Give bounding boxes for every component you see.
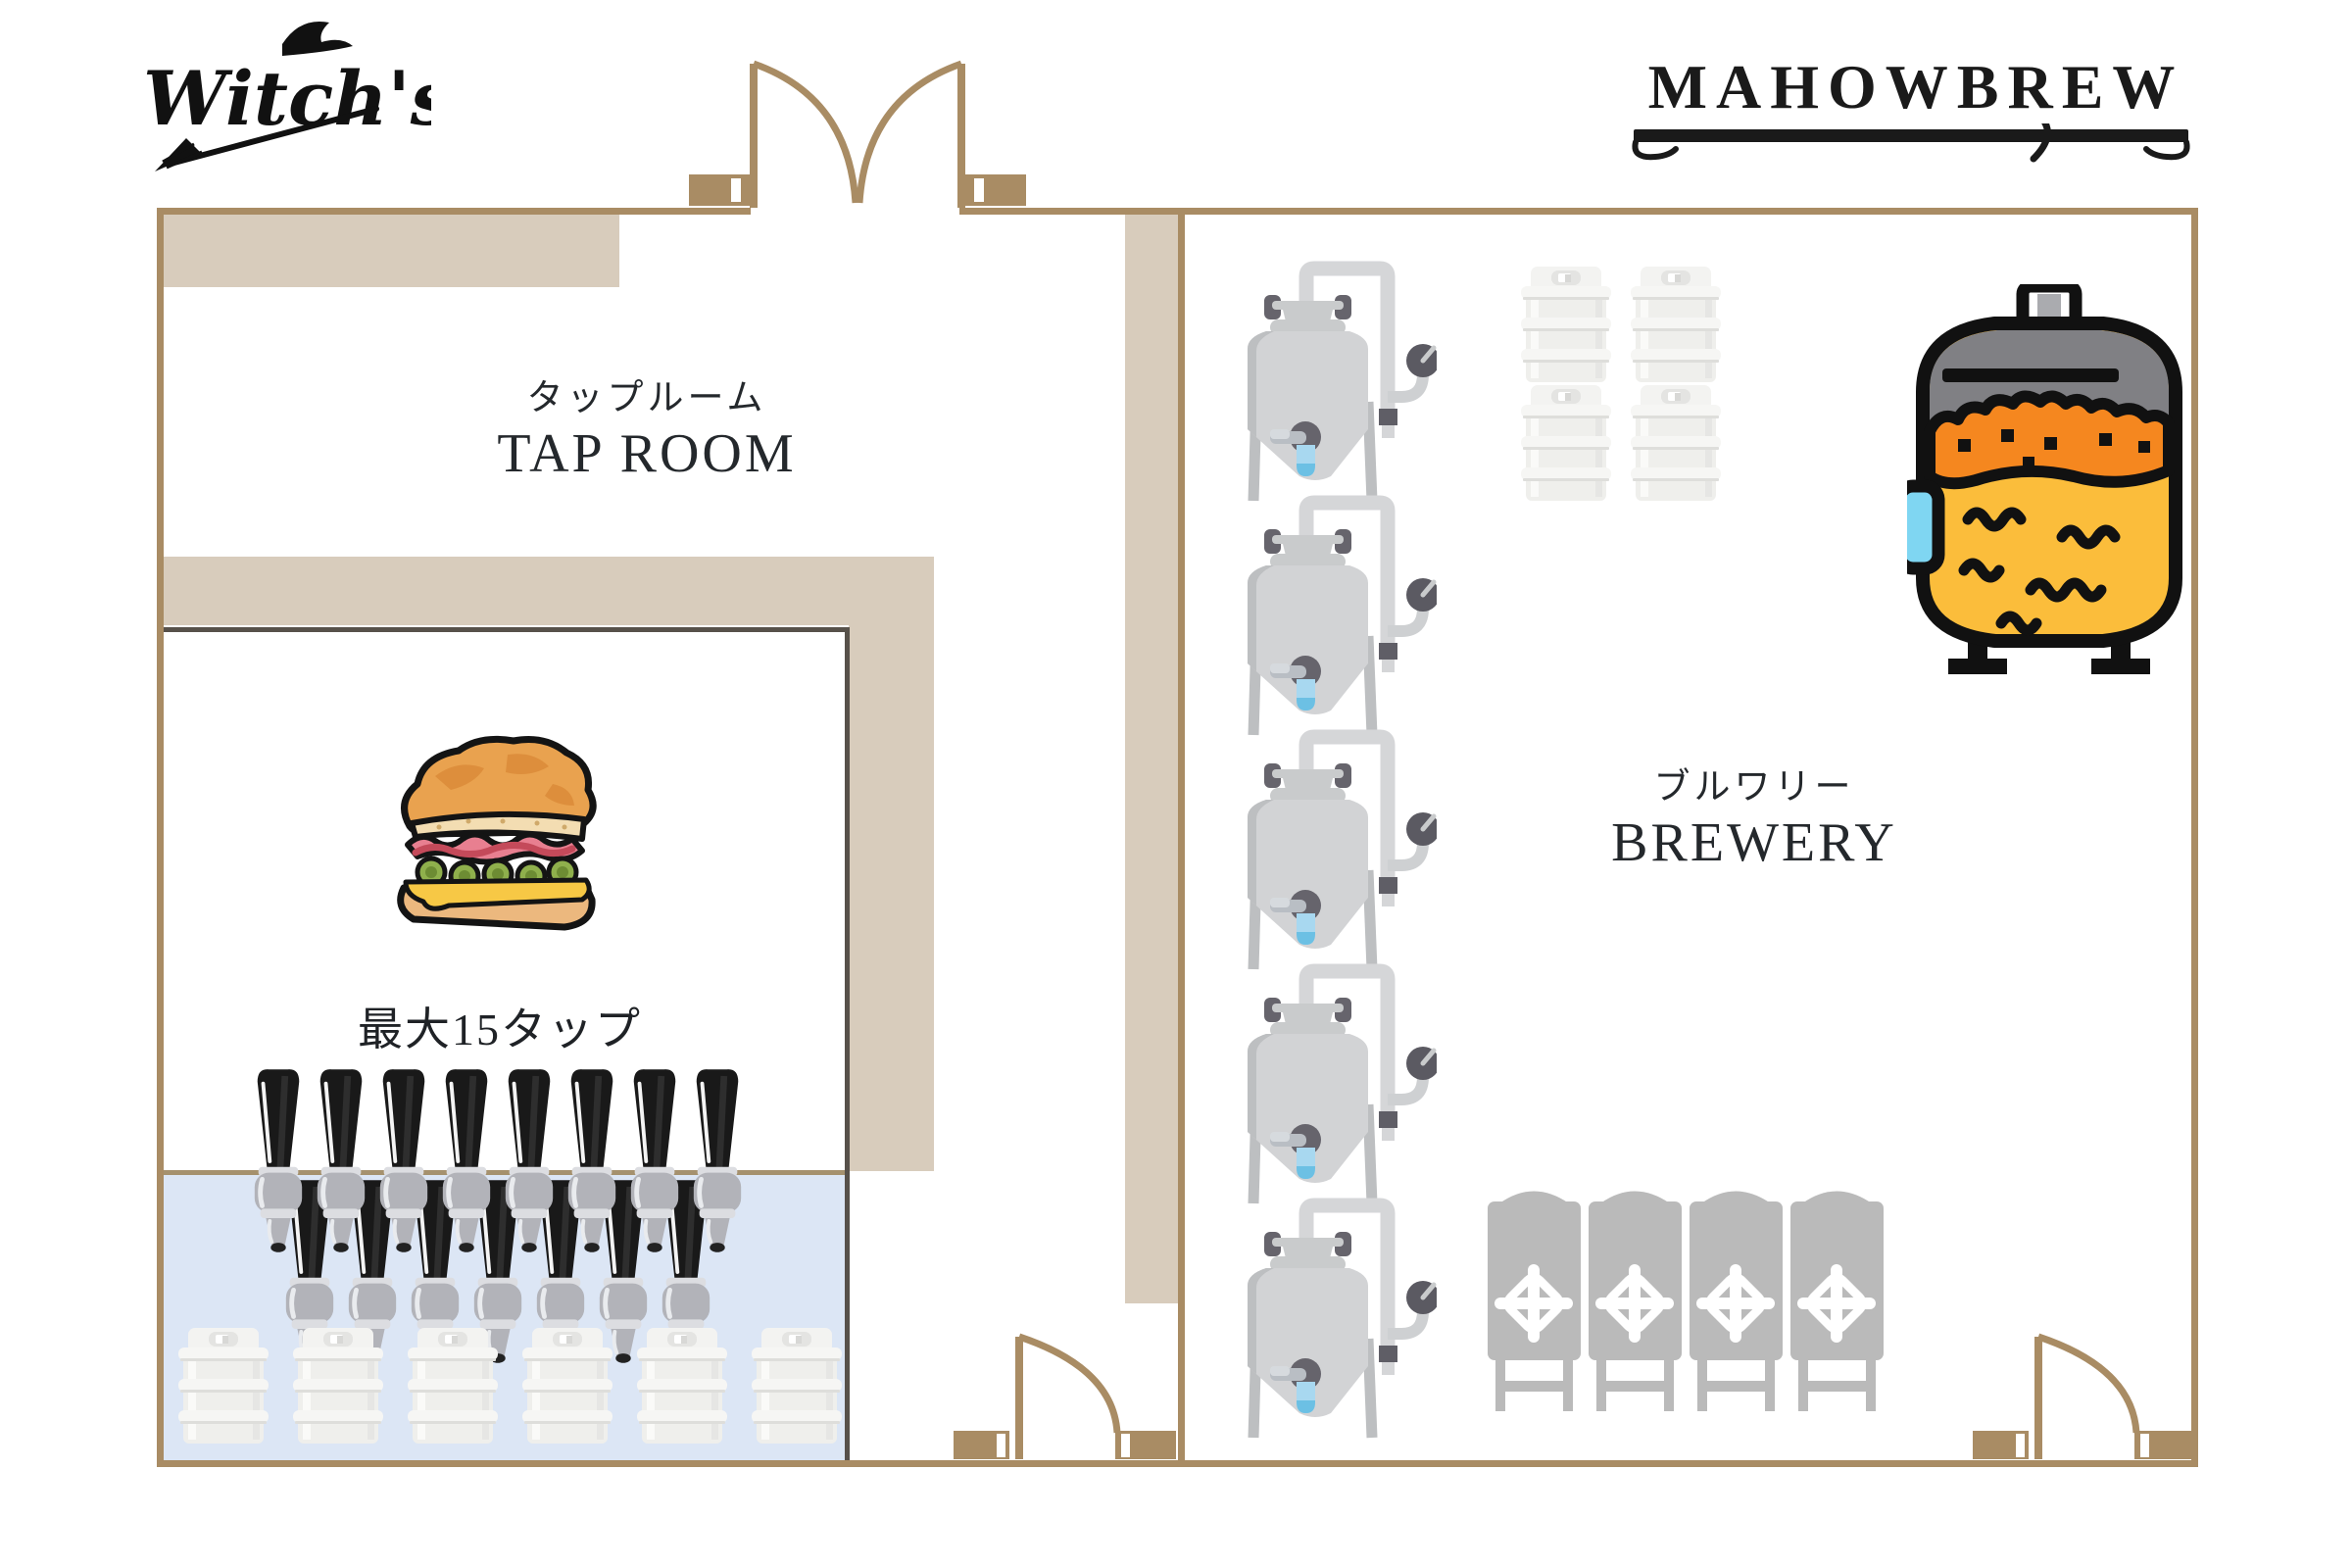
brewery-label-jp: ブルワリー <box>1509 757 1999 809</box>
tap-capacity-note: 最大15タップ <box>255 994 745 1058</box>
beer-tap-icon <box>689 1063 746 1259</box>
brite-tank-icon <box>1790 1184 1884 1414</box>
tap-row-back <box>250 1063 746 1259</box>
keg-icon <box>1631 385 1721 501</box>
keg-icon <box>637 1328 727 1444</box>
fermenter-tank-icon <box>1241 1192 1437 1440</box>
beer-tap-icon <box>250 1063 307 1259</box>
tap-room-keg-row <box>178 1328 842 1444</box>
tap-room-label: タップルーム TAP ROOM <box>402 367 892 485</box>
fermenter-tank-icon <box>1241 255 1437 503</box>
keg-icon <box>293 1328 383 1444</box>
keg-icon <box>752 1328 842 1444</box>
fermenter-column <box>1241 255 1437 1440</box>
tap-room-label-en: TAP ROOM <box>402 422 892 485</box>
beer-tap-icon <box>501 1063 558 1259</box>
fermenting-tank-icon <box>1907 284 2191 686</box>
brewery-exit-door <box>1968 1331 2203 1462</box>
keg-icon <box>1631 267 1721 382</box>
entrance-double-door <box>676 54 1058 211</box>
brite-tank-icon <box>1488 1184 1581 1414</box>
logo-text: Witch's <box>143 55 431 142</box>
brite-tank-row <box>1488 1184 1884 1414</box>
brewery-keg-grid <box>1521 267 1721 501</box>
keg-icon <box>1521 385 1611 501</box>
fermenter-tank-icon <box>1241 957 1437 1205</box>
keg-icon <box>408 1328 498 1444</box>
brewery-floor-plan: Witch's MAHOWBREW <box>0 0 2352 1568</box>
keg-icon <box>1521 267 1611 382</box>
beer-tap-icon <box>375 1063 432 1259</box>
brand-title: MAHOWBREW <box>1622 51 2210 123</box>
brand-header: MAHOWBREW <box>1622 51 2210 171</box>
brewery-label-en: BREWERY <box>1509 811 1999 874</box>
brite-tank-icon <box>1690 1184 1783 1414</box>
keg-icon <box>522 1328 612 1444</box>
brand-underline <box>1622 123 2210 167</box>
beer-tap-icon <box>313 1063 369 1259</box>
tap-room-exit-door <box>949 1331 1184 1462</box>
keg-icon <box>178 1328 269 1444</box>
fermenter-tank-icon <box>1241 723 1437 971</box>
witchs-logo: Witch's <box>137 15 431 171</box>
beer-tap-icon <box>438 1063 495 1259</box>
fermenter-tank-icon <box>1241 489 1437 737</box>
beer-tap-icon <box>626 1063 683 1259</box>
sandwich-icon <box>390 733 606 934</box>
brite-tank-icon <box>1589 1184 1682 1414</box>
tap-room-label-jp: タップルーム <box>402 367 892 420</box>
brewery-label: ブルワリー BREWERY <box>1509 757 1999 874</box>
beer-tap-icon <box>563 1063 620 1259</box>
